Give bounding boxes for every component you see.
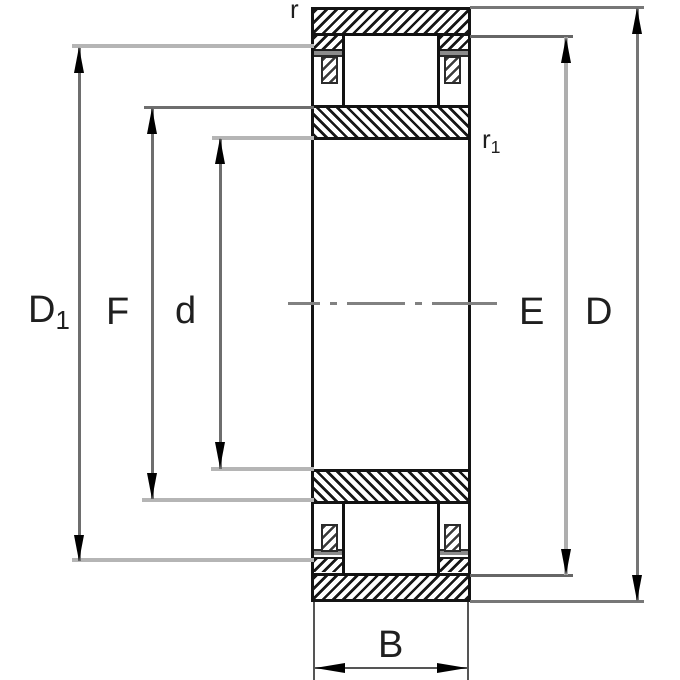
outer-ring-flange-top-right [440, 36, 468, 51]
axis-centerline [288, 302, 497, 305]
e-arrow-down-icon [561, 549, 571, 575]
outer-ring-flange-bottom-left [314, 557, 342, 572]
cage-bottom-right [444, 524, 461, 552]
roller-bottom [342, 501, 440, 576]
d-label-main: d [175, 290, 196, 332]
d-extension-top [212, 136, 314, 140]
roller-top [342, 33, 440, 108]
d1-extension-top [72, 44, 314, 48]
dcap-label-main: D [585, 291, 612, 333]
cage-bottom-left [321, 524, 338, 552]
d1-label-sub: 1 [55, 307, 69, 335]
f-label: F [106, 293, 129, 331]
dcap-extension-bottom [470, 600, 644, 603]
d-dimension-line [219, 139, 222, 469]
d-extension-bottom [211, 467, 314, 471]
r1-label-main: r [482, 124, 491, 154]
d1-label: D1 [28, 291, 70, 335]
e-label-main: E [519, 291, 544, 333]
f-arrow-up-icon [147, 108, 157, 134]
b-arrow-left-icon [315, 663, 345, 673]
outer-ring-bottom-section [314, 573, 468, 599]
r1-label: r1 [482, 126, 501, 157]
outer-ring-flange-top-left [314, 36, 342, 51]
cage-top-left [321, 56, 338, 84]
d-arrow-up-icon [215, 138, 225, 164]
dcap-arrow-up-icon [632, 8, 642, 34]
dcap-dimension-line [636, 8, 639, 601]
d1-label-main: D [28, 289, 55, 331]
dcap-arrow-down-icon [632, 575, 642, 601]
outer-ring-flange-bottom-right [440, 557, 468, 572]
d1-dimension-line [78, 48, 81, 561]
e-dimension-line [564, 37, 568, 575]
e-extension-bottom [470, 574, 573, 577]
dcap-extension-top [470, 6, 644, 9]
d1-extension-bottom [72, 558, 314, 562]
f-label-main: F [106, 291, 129, 333]
d-label: d [175, 292, 196, 330]
e-extension-top [470, 35, 573, 38]
r-label-main: r [290, 0, 299, 24]
f-extension-top [144, 106, 314, 109]
b-label: B [378, 626, 403, 664]
e-arrow-up-icon [561, 37, 571, 63]
r-label: r [290, 0, 299, 22]
b-arrow-right-icon [437, 663, 467, 673]
f-arrow-down-icon [147, 473, 157, 499]
d-arrow-down-icon [215, 442, 225, 468]
dcap-label: D [585, 293, 612, 331]
d1-arrow-up-icon [74, 47, 84, 73]
r1-label-sub: 1 [491, 137, 501, 157]
f-extension-bottom [142, 498, 314, 502]
b-label-main: B [378, 624, 403, 666]
inner-ring-bottom-section [314, 469, 468, 504]
f-dimension-line [151, 109, 154, 499]
cage-top-right [444, 56, 461, 84]
inner-ring-top-section [314, 105, 468, 140]
e-label: E [519, 293, 544, 331]
bearing-dimension-drawing: D1 F d E D B r r1 [0, 0, 680, 680]
